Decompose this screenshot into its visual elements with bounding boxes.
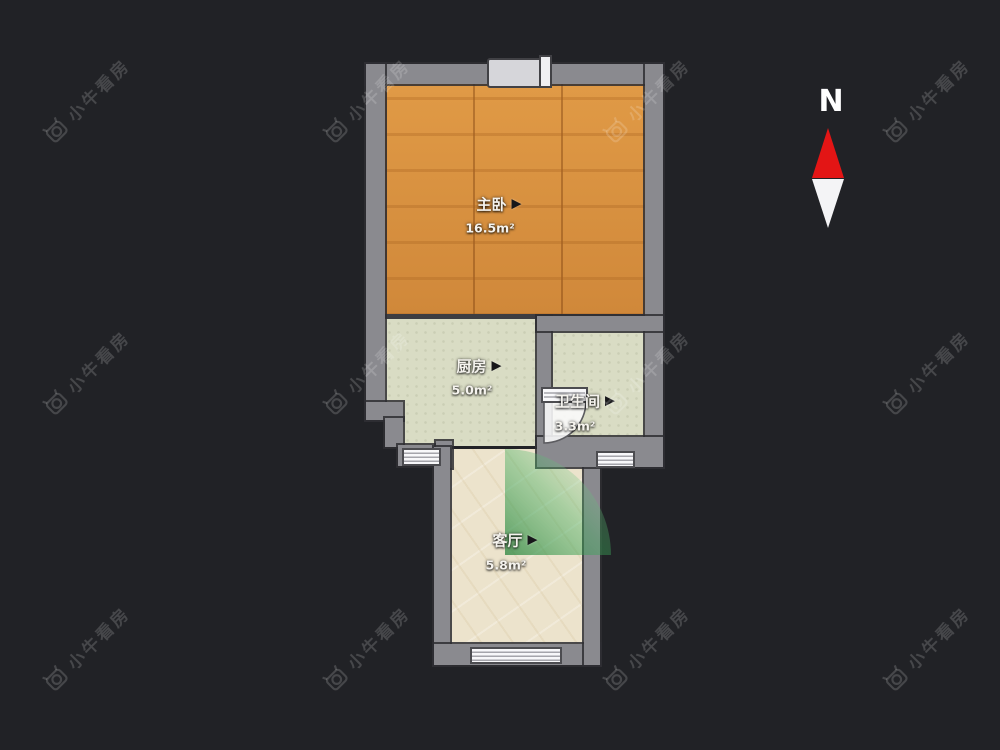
area-living-room: 5.8m² xyxy=(486,558,527,573)
wall-left xyxy=(366,64,385,420)
label-master-bedroom: 主卧▶ xyxy=(476,194,521,215)
living-room-name: 客厅 xyxy=(492,530,522,551)
area-kitchen: 5.0m² xyxy=(452,383,493,398)
kitchen-window xyxy=(402,448,441,466)
north-label: N xyxy=(818,84,843,119)
compass-north-arrow-icon xyxy=(812,128,844,178)
wall-living-left xyxy=(434,447,450,665)
bedroom-door-jamb xyxy=(539,55,552,88)
label-arrow-icon: ▶ xyxy=(528,533,538,548)
label-arrow-icon: ▶ xyxy=(492,359,502,374)
north-compass: N xyxy=(800,84,862,234)
living-room-window xyxy=(470,647,562,664)
bathroom-name: 卫生间 xyxy=(555,391,600,412)
label-arrow-icon: ▶ xyxy=(605,394,615,409)
label-living-room: 客厅▶ xyxy=(492,530,537,551)
floor-plan-screen: { "watermark": { "text": "小牛看房", "icon":… xyxy=(0,0,1000,750)
kitchen-name: 厨房 xyxy=(456,356,486,377)
label-arrow-icon: ▶ xyxy=(512,197,522,212)
wall-step-vertical xyxy=(385,418,403,447)
wall-right xyxy=(645,64,663,467)
label-bathroom: 卫生间▶ xyxy=(555,391,615,412)
compass-south-arrow-icon xyxy=(812,179,844,228)
master-bedroom-name: 主卧 xyxy=(476,194,506,215)
area-bathroom: 3.3m² xyxy=(555,419,596,434)
label-kitchen: 厨房▶ xyxy=(456,356,501,377)
wall-bathroom-top xyxy=(537,316,663,331)
bedroom-door-panel xyxy=(487,58,543,88)
area-master-bedroom: 16.5m² xyxy=(465,221,514,236)
